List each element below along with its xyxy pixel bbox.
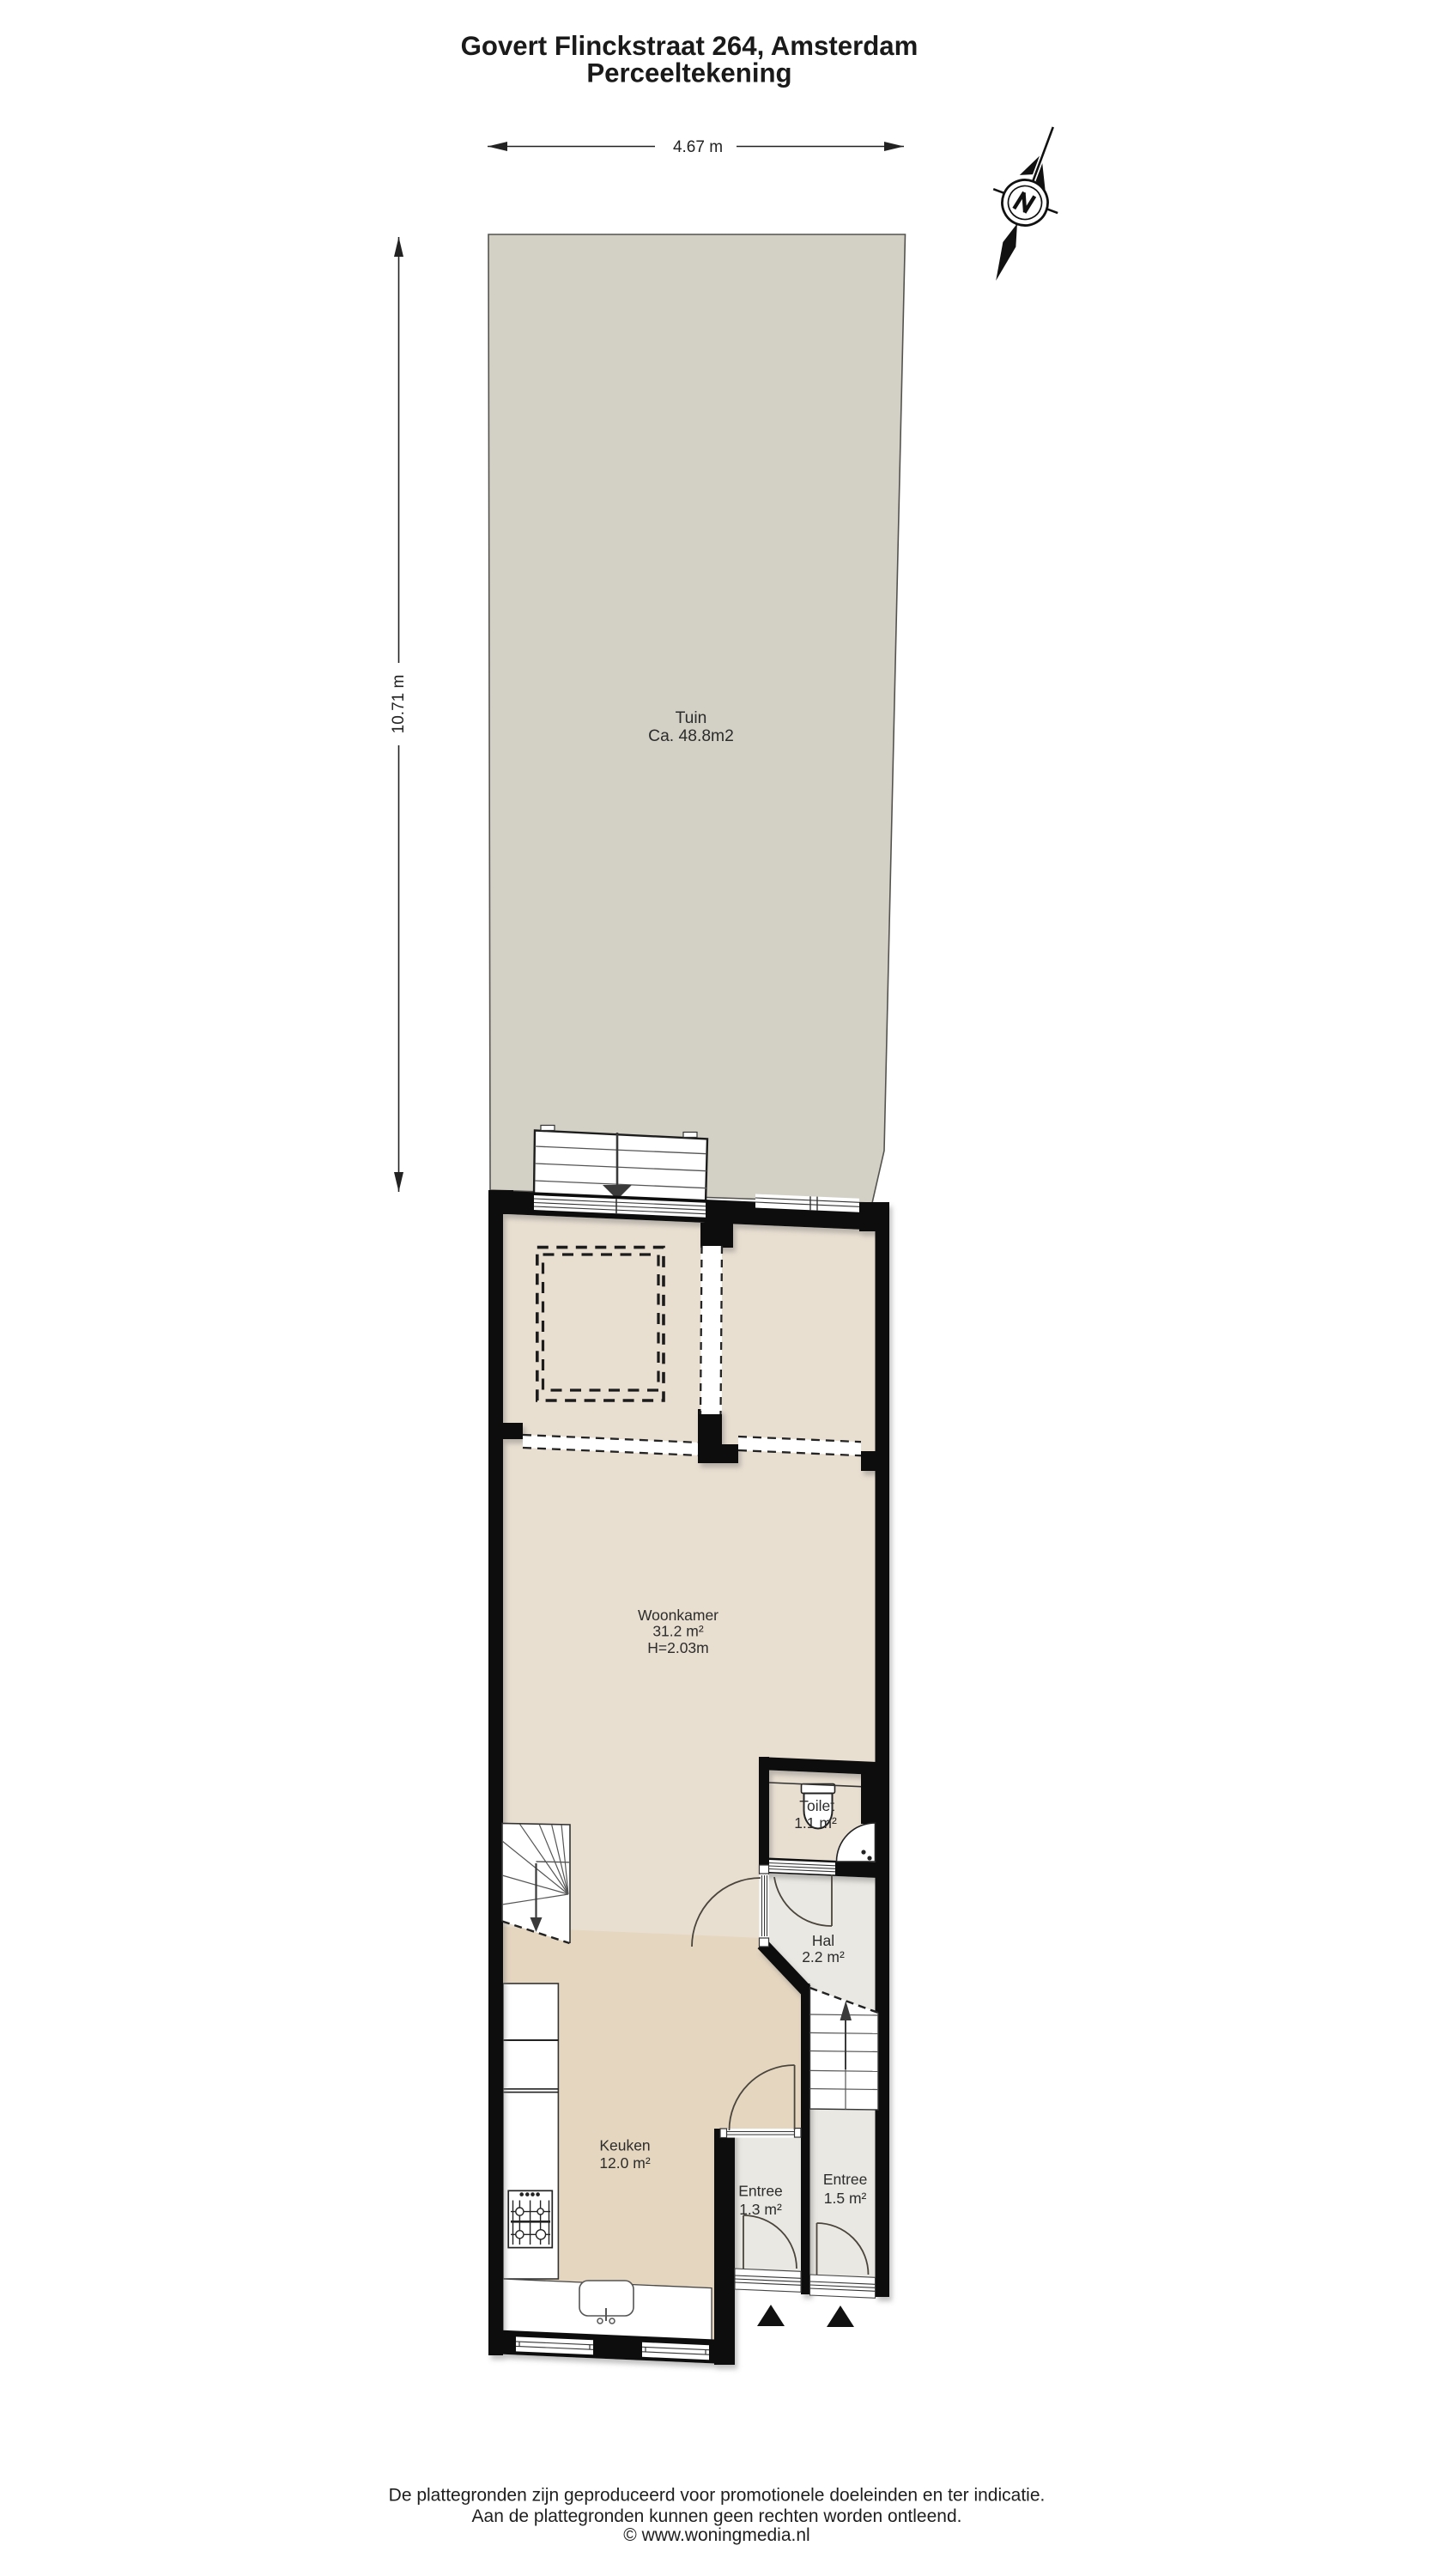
- svg-text:Woonkamer: Woonkamer: [638, 1607, 718, 1624]
- svg-text:Tuin: Tuin: [676, 709, 707, 727]
- svg-text:Hal: Hal: [812, 1932, 834, 1949]
- svg-text:© www.woningmedia.nl: © www.woningmedia.nl: [623, 2525, 809, 2545]
- svg-text:Entree: Entree: [823, 2171, 868, 2188]
- svg-text:H=2.03m: H=2.03m: [647, 1639, 709, 1656]
- svg-text:Toilet: Toilet: [799, 1797, 834, 1814]
- svg-text:1.3 m²: 1.3 m²: [739, 2201, 782, 2218]
- svg-text:4.67 m: 4.67 m: [673, 138, 723, 156]
- svg-text:31.2 m²: 31.2 m²: [652, 1623, 703, 1640]
- svg-text:1.5 m²: 1.5 m²: [824, 2190, 867, 2207]
- svg-text:Aan de plattegronden kunnen ge: Aan de plattegronden kunnen geen rechten…: [472, 2506, 962, 2526]
- svg-text:Entree: Entree: [738, 2183, 783, 2200]
- svg-text:Perceeltekening: Perceeltekening: [586, 58, 791, 88]
- svg-text:Govert Flinckstraat 264, Amste: Govert Flinckstraat 264, Amsterdam: [461, 31, 919, 61]
- svg-text:2.2 m²: 2.2 m²: [802, 1948, 845, 1965]
- svg-text:Ca. 48.8m2: Ca. 48.8m2: [648, 727, 734, 745]
- svg-text:1.1 m²: 1.1 m²: [794, 1814, 837, 1832]
- svg-text:Keuken: Keuken: [599, 2137, 650, 2154]
- svg-text:De plattegronden zijn geproduc: De plattegronden zijn geproduceerd voor …: [389, 2486, 1046, 2506]
- svg-text:10.71 m: 10.71 m: [390, 675, 408, 734]
- svg-text:12.0 m²: 12.0 m²: [599, 2154, 650, 2172]
